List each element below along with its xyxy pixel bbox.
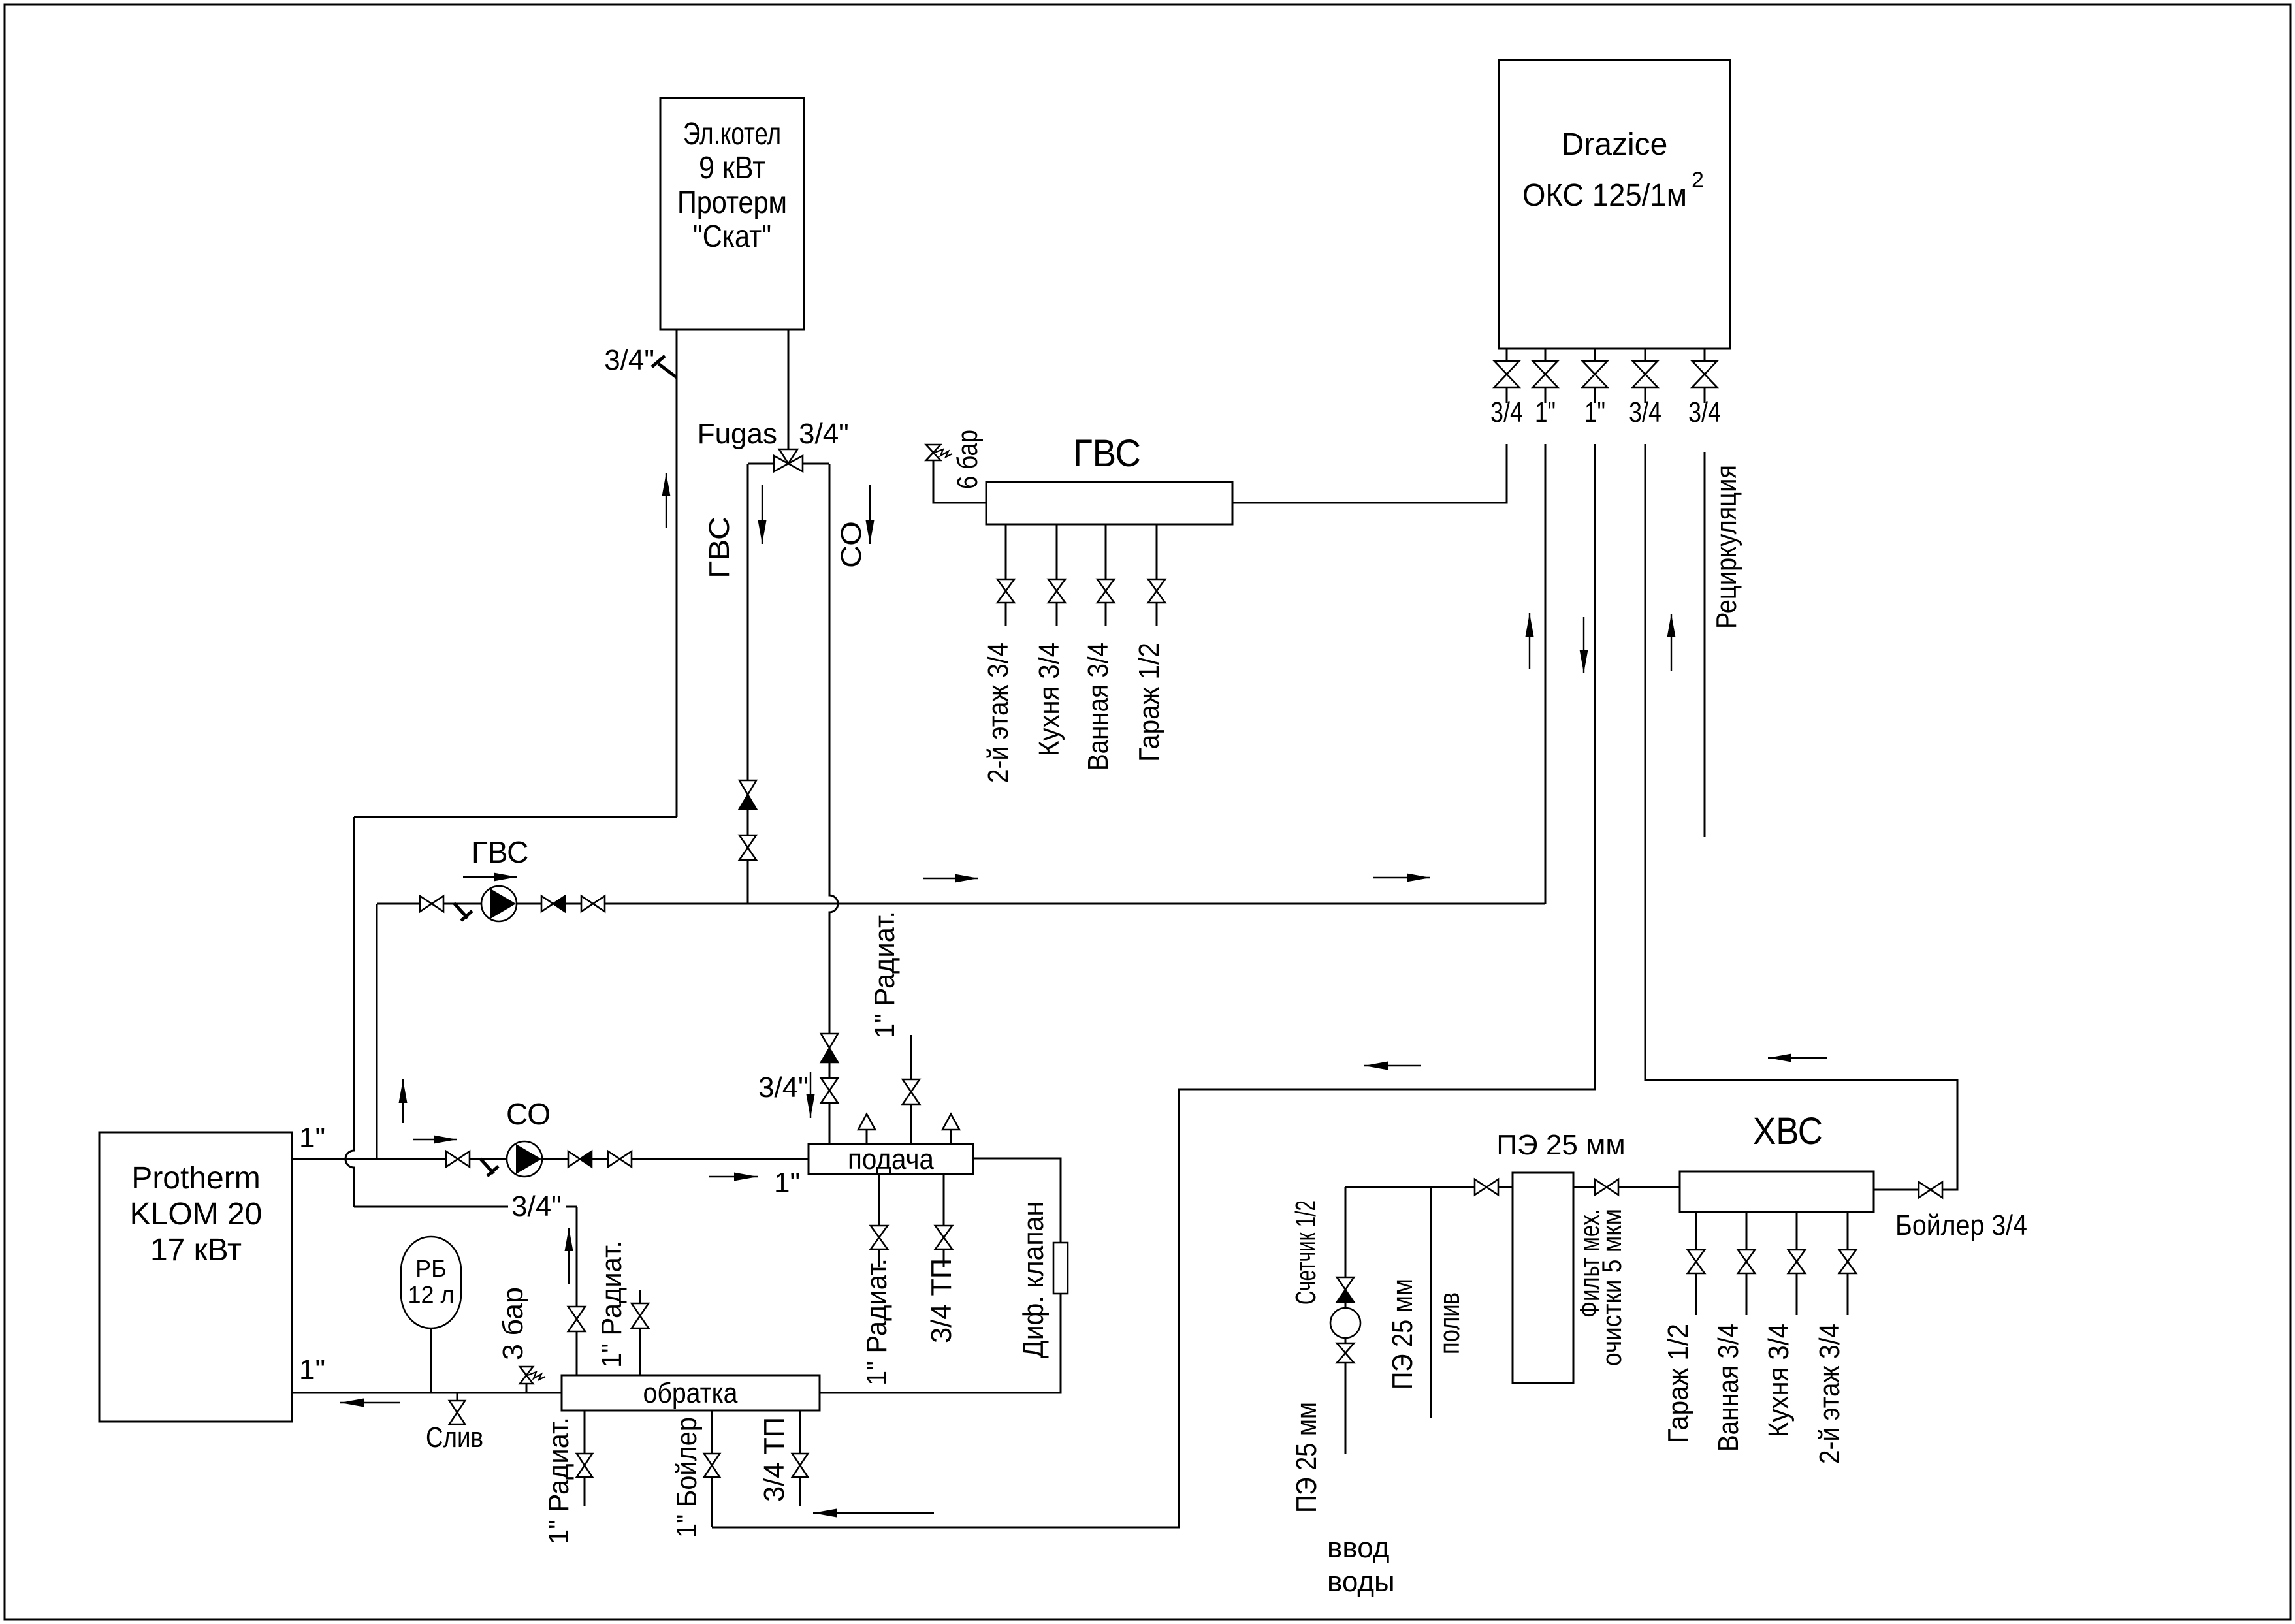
svg-text:2: 2	[1692, 168, 1704, 193]
svg-text:17 кВт: 17 кВт	[150, 1233, 242, 1267]
svg-text:Бойлер 3/4: Бойлер 3/4	[1895, 1209, 2027, 1241]
svg-text:3/4": 3/4"	[799, 418, 849, 450]
svg-text:Диф. клапан: Диф. клапан	[1018, 1202, 1050, 1358]
svg-text:СО: СО	[506, 1097, 551, 1131]
svg-text:воды: воды	[1327, 1566, 1395, 1598]
svg-text:Счетчик 1/2: Счетчик 1/2	[1290, 1200, 1322, 1305]
svg-text:ОКС 125/1м: ОКС 125/1м	[1522, 178, 1687, 213]
svg-text:ПЭ 25 мм: ПЭ 25 мм	[1291, 1402, 1323, 1513]
svg-text:3/4 ТП: 3/4 ТП	[758, 1417, 790, 1502]
svg-text:3 бар: 3 бар	[497, 1287, 529, 1360]
svg-text:3/4: 3/4	[1688, 396, 1721, 428]
svg-text:СО: СО	[835, 521, 867, 568]
svg-text:Протерм: Протерм	[677, 185, 787, 220]
svg-text:3/4: 3/4	[1629, 396, 1661, 428]
svg-text:3/4": 3/4"	[604, 344, 654, 376]
svg-text:1" Радиат.: 1" Радиат.	[869, 911, 901, 1038]
svg-text:ГВС: ГВС	[472, 835, 528, 869]
svg-text:2-й этаж 3/4: 2-й этаж 3/4	[982, 643, 1014, 783]
svg-text:ХВС: ХВС	[1753, 1110, 1823, 1153]
svg-text:Рециркуляция: Рециркуляция	[1710, 465, 1742, 629]
svg-text:1": 1"	[299, 1122, 325, 1154]
svg-text:Ванная 3/4: Ванная 3/4	[1712, 1324, 1744, 1452]
svg-text:ГВС: ГВС	[703, 517, 735, 579]
svg-text:ПЭ 25 мм: ПЭ 25 мм	[1496, 1129, 1625, 1161]
svg-text:Кухня 3/4: Кухня 3/4	[1763, 1324, 1795, 1437]
svg-text:3/4": 3/4"	[511, 1190, 562, 1222]
svg-text:1" Радиат.: 1" Радиат.	[596, 1241, 628, 1368]
svg-text:"Скат": "Скат"	[693, 219, 771, 254]
svg-text:Гараж 1/2: Гараж 1/2	[1133, 643, 1165, 762]
svg-text:Слив: Слив	[426, 1422, 483, 1454]
svg-text:ГВС: ГВС	[1073, 432, 1141, 475]
svg-text:Эл.котел: Эл.котел	[683, 117, 781, 151]
svg-text:1": 1"	[299, 1354, 325, 1386]
svg-text:1": 1"	[1535, 396, 1556, 428]
svg-text:1": 1"	[1584, 396, 1605, 428]
svg-text:3/4: 3/4	[1490, 396, 1523, 428]
svg-text:ПЭ 25 мм: ПЭ 25 мм	[1387, 1279, 1419, 1390]
svg-text:1" Бойлер: 1" Бойлер	[671, 1417, 703, 1538]
svg-text:очистки 5 мкм: очистки 5 мкм	[1596, 1209, 1627, 1366]
svg-text:1": 1"	[774, 1167, 800, 1199]
svg-text:KLOM 20: KLOM 20	[130, 1197, 263, 1232]
svg-text:9 кВт: 9 кВт	[699, 151, 765, 185]
svg-text:1" Радиат.: 1" Радиат.	[543, 1417, 575, 1544]
svg-text:ввод: ввод	[1327, 1532, 1389, 1564]
svg-text:РБ: РБ	[415, 1255, 447, 1282]
svg-text:Fugas: Fugas	[698, 418, 777, 450]
svg-text:обратка: обратка	[643, 1377, 738, 1409]
svg-text:Ванная 3/4: Ванная 3/4	[1082, 643, 1114, 771]
svg-text:3/4 ТП: 3/4 ТП	[925, 1258, 957, 1343]
svg-text:Кухня 3/4: Кухня 3/4	[1033, 643, 1065, 756]
svg-text:полив: полив	[1434, 1292, 1466, 1354]
svg-text:Protherm: Protherm	[131, 1161, 260, 1196]
svg-text:Drazice: Drazice	[1562, 127, 1668, 162]
svg-text:12 л: 12 л	[408, 1281, 454, 1308]
svg-text:подача: подача	[848, 1143, 934, 1175]
svg-text:3/4": 3/4"	[758, 1072, 809, 1104]
svg-text:Гараж 1/2: Гараж 1/2	[1662, 1324, 1694, 1443]
svg-text:1" Радиат.: 1" Радиат.	[861, 1258, 893, 1386]
svg-text:2-й этаж 3/4: 2-й этаж 3/4	[1814, 1324, 1846, 1464]
svg-text:6 бар: 6 бар	[952, 430, 984, 489]
